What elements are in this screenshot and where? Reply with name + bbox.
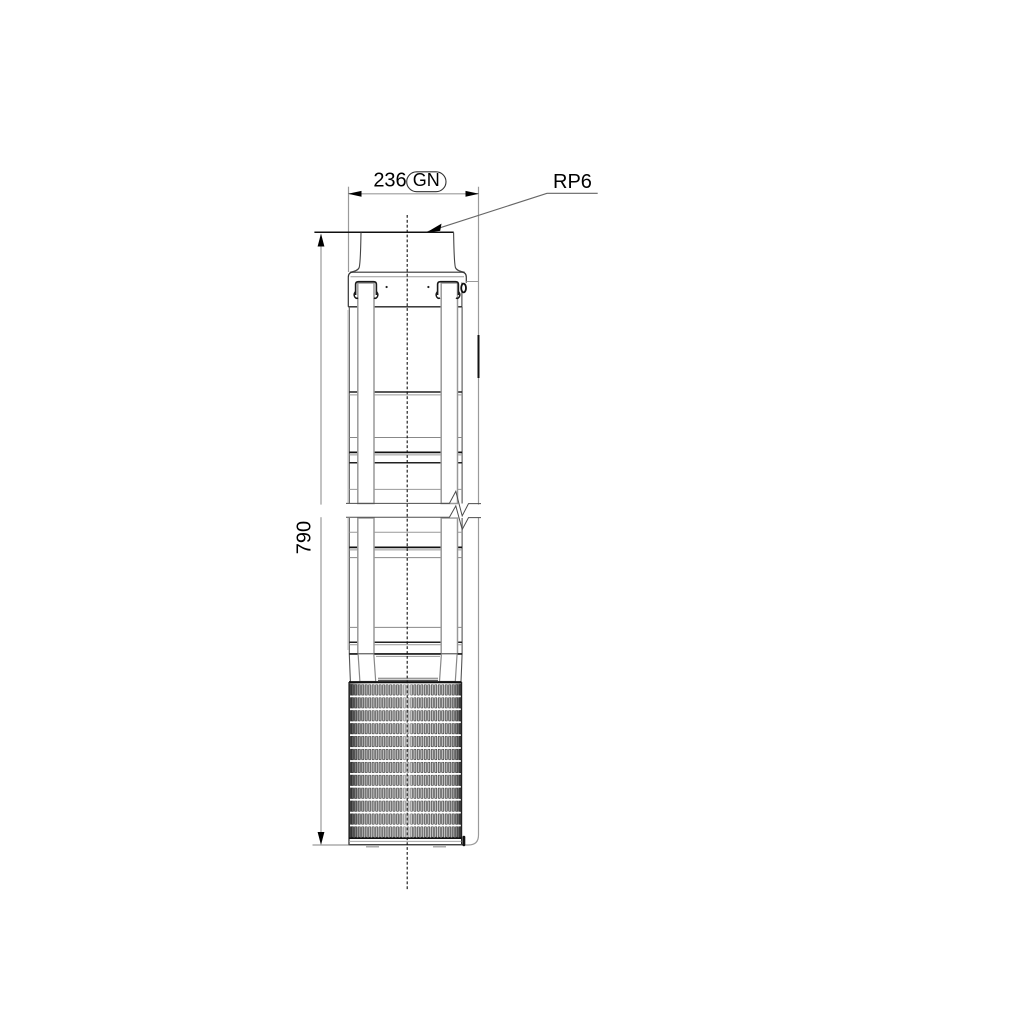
- svg-text:GN: GN: [413, 170, 440, 190]
- svg-text:236: 236: [373, 170, 406, 192]
- svg-text:790: 790: [294, 521, 316, 554]
- svg-text:RP6: RP6: [553, 171, 592, 193]
